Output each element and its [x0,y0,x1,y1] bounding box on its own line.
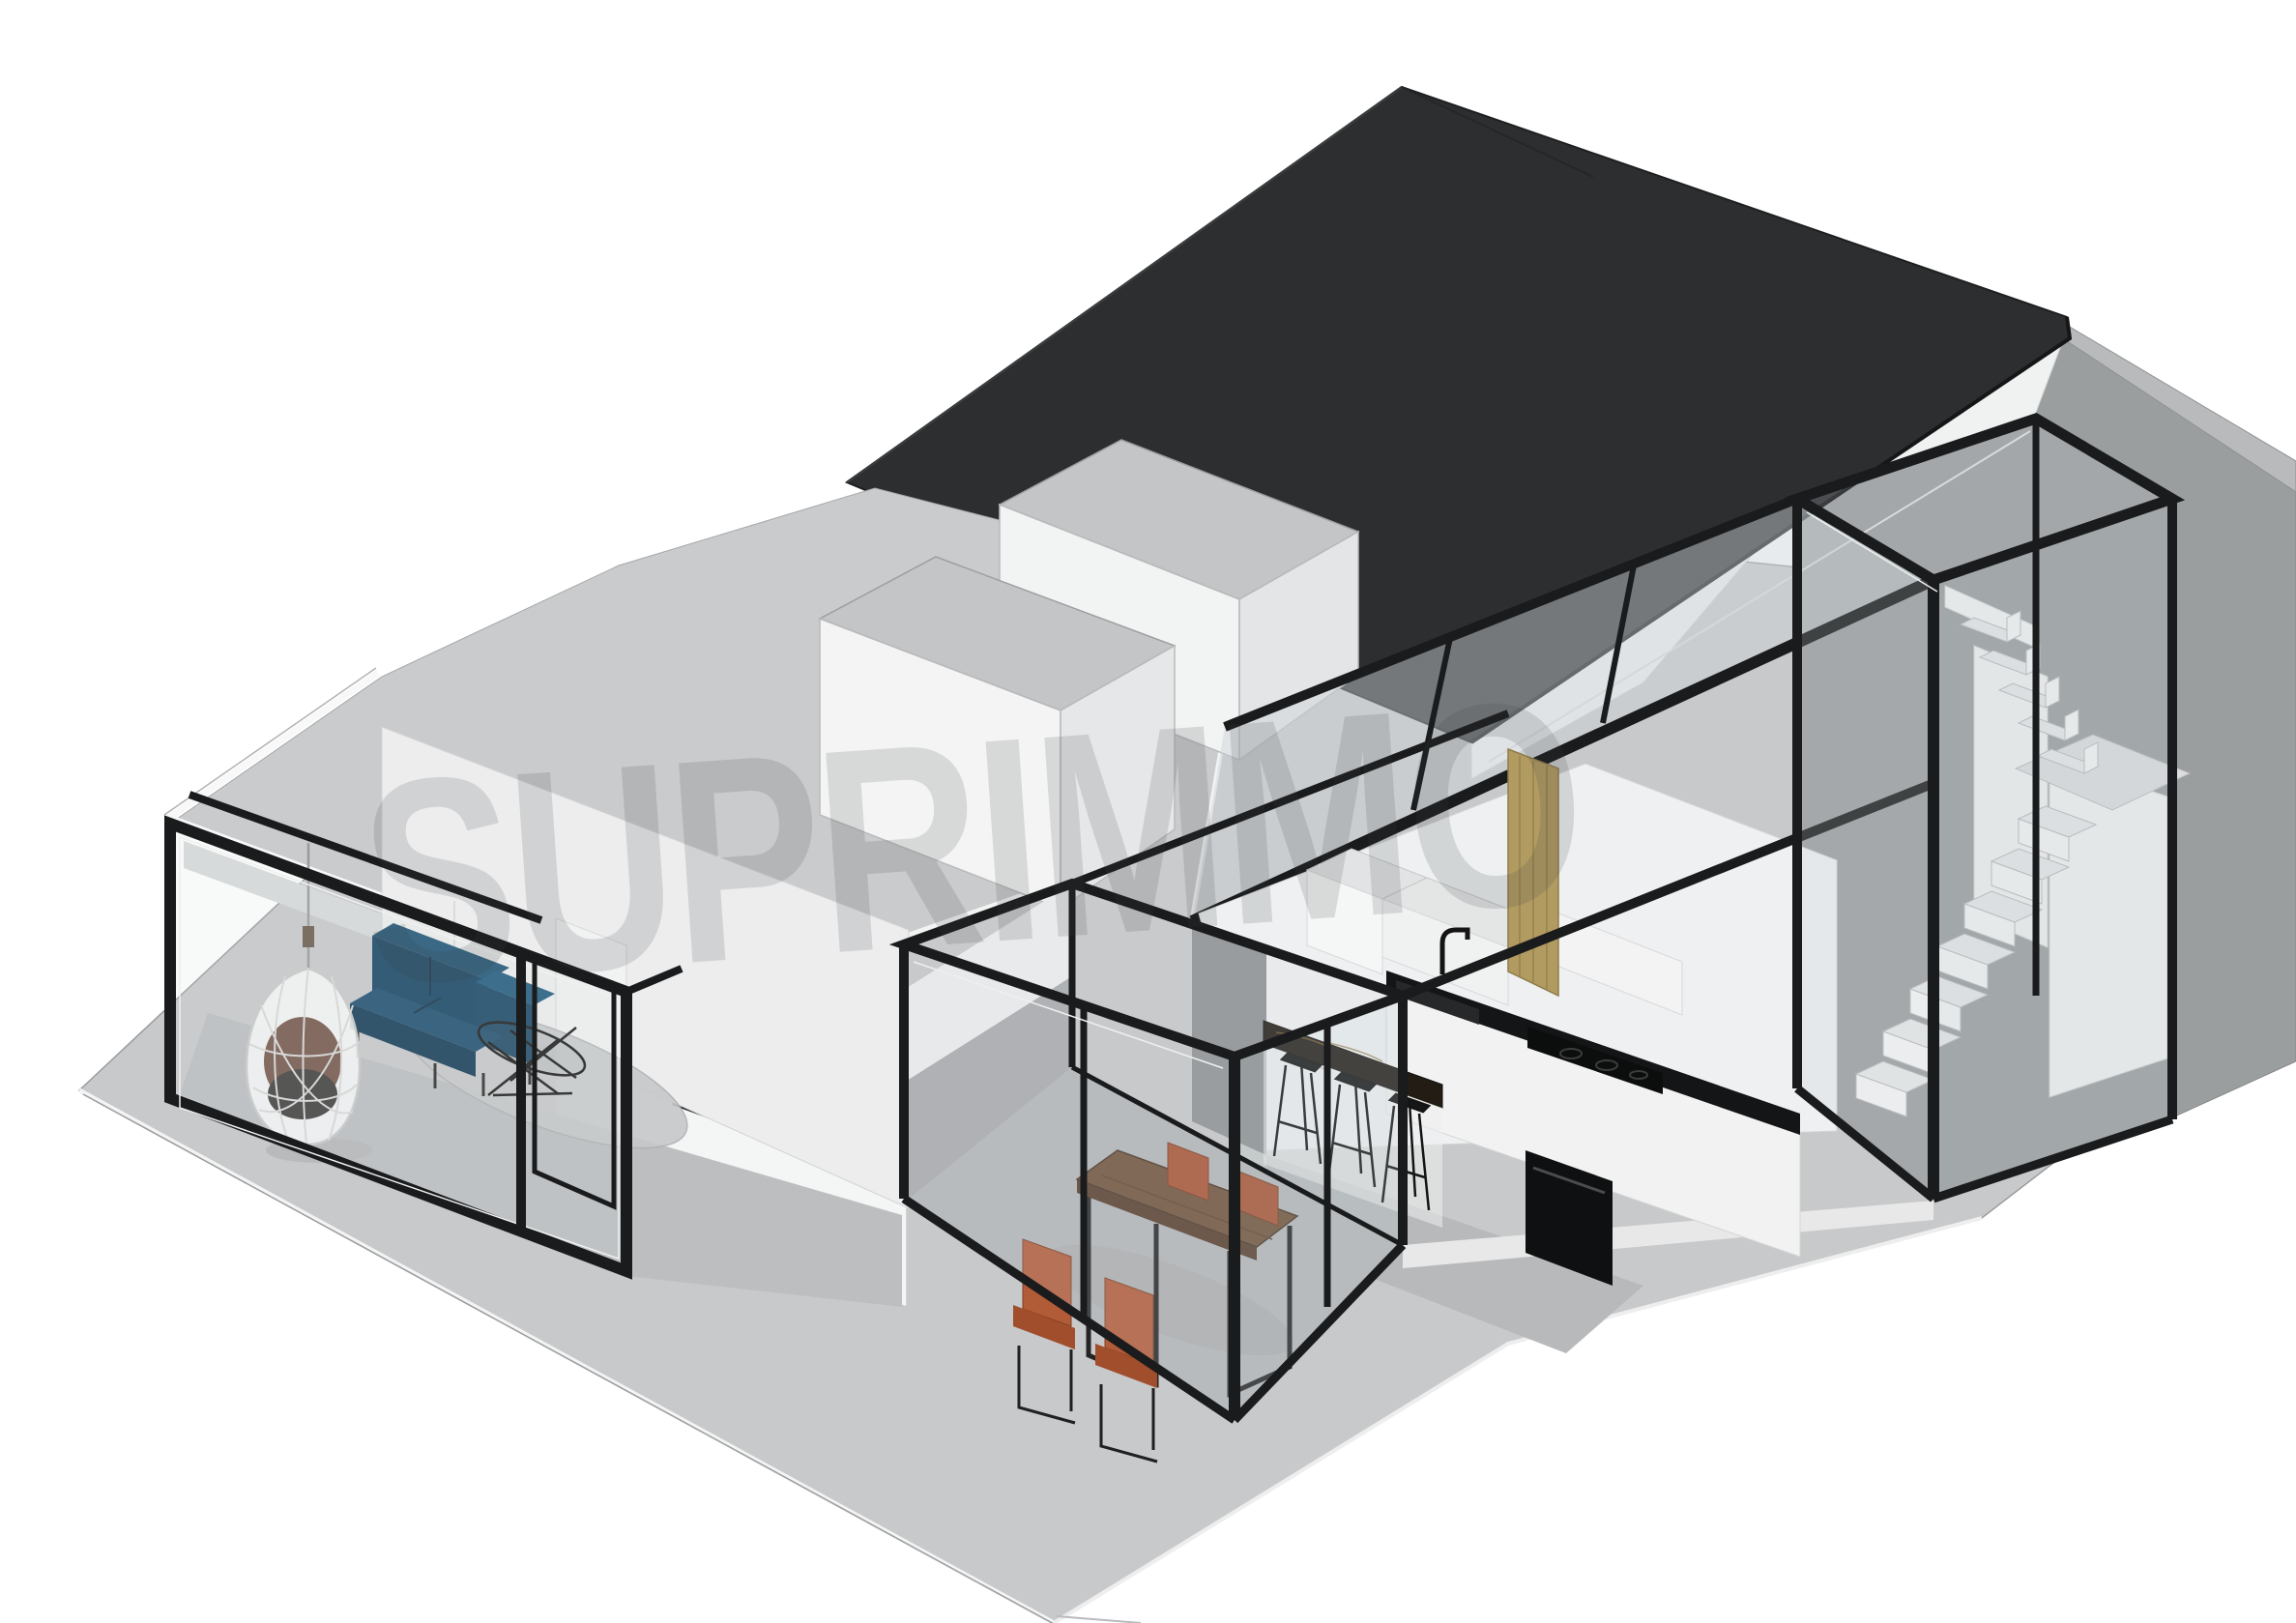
stair-area [1797,419,2190,1199]
apartment-3d-render: SUPRIMMO [0,0,2296,1623]
stair-box-frame [1797,419,2172,1199]
render-canvas: SUPRIMMO [0,0,2296,1623]
